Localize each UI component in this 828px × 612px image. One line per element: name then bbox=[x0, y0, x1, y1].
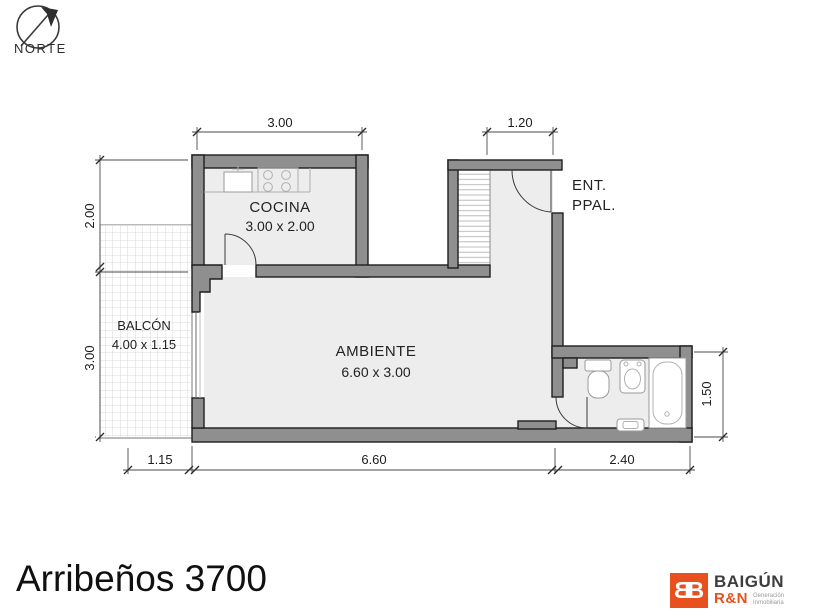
wall-bath-left-stub bbox=[563, 358, 577, 368]
dim-bottom-bath: 2.40 bbox=[609, 452, 634, 467]
brand-tagline: Generación Inmobiliaria bbox=[753, 591, 784, 607]
brand-sub: R&N bbox=[714, 591, 748, 606]
label-cocina: COCINA bbox=[249, 199, 310, 216]
washbasin bbox=[620, 360, 645, 393]
label-entrada-1: ENT. bbox=[572, 177, 607, 194]
svg-text:3.00: 3.00 bbox=[82, 345, 97, 370]
wall-bottom-tab bbox=[518, 421, 556, 429]
bidet bbox=[617, 419, 644, 431]
brand-tagline-line2: Inmobiliaria bbox=[753, 600, 784, 607]
brand-logo-text: BAIGÚN R&N Generación Inmobiliaria bbox=[714, 573, 784, 607]
dim-right-bath: 1.50 bbox=[694, 347, 728, 442]
dim-top-entry: 1.20 bbox=[482, 115, 558, 155]
wall-entry-top bbox=[448, 160, 562, 170]
wall-kitchen-left bbox=[192, 155, 204, 268]
dim-bottom-ambiente: 6.60 bbox=[361, 452, 386, 467]
label-ambiente: AMBIENTE bbox=[336, 343, 417, 360]
logo-letter-b-mirrored: B bbox=[674, 579, 691, 602]
label-balcon-dims: 4.00 x 1.15 bbox=[112, 337, 176, 352]
wall-hall-right bbox=[552, 213, 563, 397]
wall-kitchen-right bbox=[356, 155, 368, 277]
page-title: Arribeños 3700 bbox=[16, 558, 267, 600]
bathtub bbox=[649, 358, 686, 428]
brand-logo: B B BAIGÚN R&N Generación Inmobiliaria bbox=[670, 573, 784, 608]
dim-top-kitchen: 3.00 bbox=[192, 115, 367, 150]
toilet bbox=[585, 360, 611, 398]
brand-name: BAIGÚN bbox=[714, 573, 784, 590]
wall-bath-top bbox=[552, 346, 692, 358]
label-ambiente-dims: 6.60 x 3.00 bbox=[341, 364, 410, 380]
dim-bottom-balcony: 1.15 bbox=[147, 452, 172, 467]
label-balcon: BALCÓN bbox=[117, 318, 170, 333]
wall-ambiente-left-stub bbox=[192, 398, 204, 428]
label-entrada-2: PPAL. bbox=[572, 197, 616, 214]
label-cocina-dims: 3.00 x 2.00 bbox=[245, 218, 314, 234]
floor-plan-page: NORTE bbox=[0, 0, 828, 612]
brand-logo-monogram: B B bbox=[670, 573, 708, 608]
stairs bbox=[458, 170, 490, 265]
svg-text:1.50: 1.50 bbox=[699, 381, 714, 406]
wall-kitchen-top bbox=[192, 155, 368, 168]
wall-entry-left bbox=[448, 160, 458, 268]
floor-plan-drawing: NORTE bbox=[0, 0, 828, 612]
balcony-door bbox=[196, 312, 200, 398]
dim-bottom-chain: 1.15 6.60 2.40 bbox=[123, 446, 695, 474]
north-label: NORTE bbox=[14, 41, 67, 56]
svg-text:2.00: 2.00 bbox=[82, 203, 97, 228]
svg-text:1.20: 1.20 bbox=[507, 115, 532, 130]
svg-text:3.00: 3.00 bbox=[267, 115, 292, 130]
brand-tagline-line1: Generación bbox=[753, 593, 784, 600]
